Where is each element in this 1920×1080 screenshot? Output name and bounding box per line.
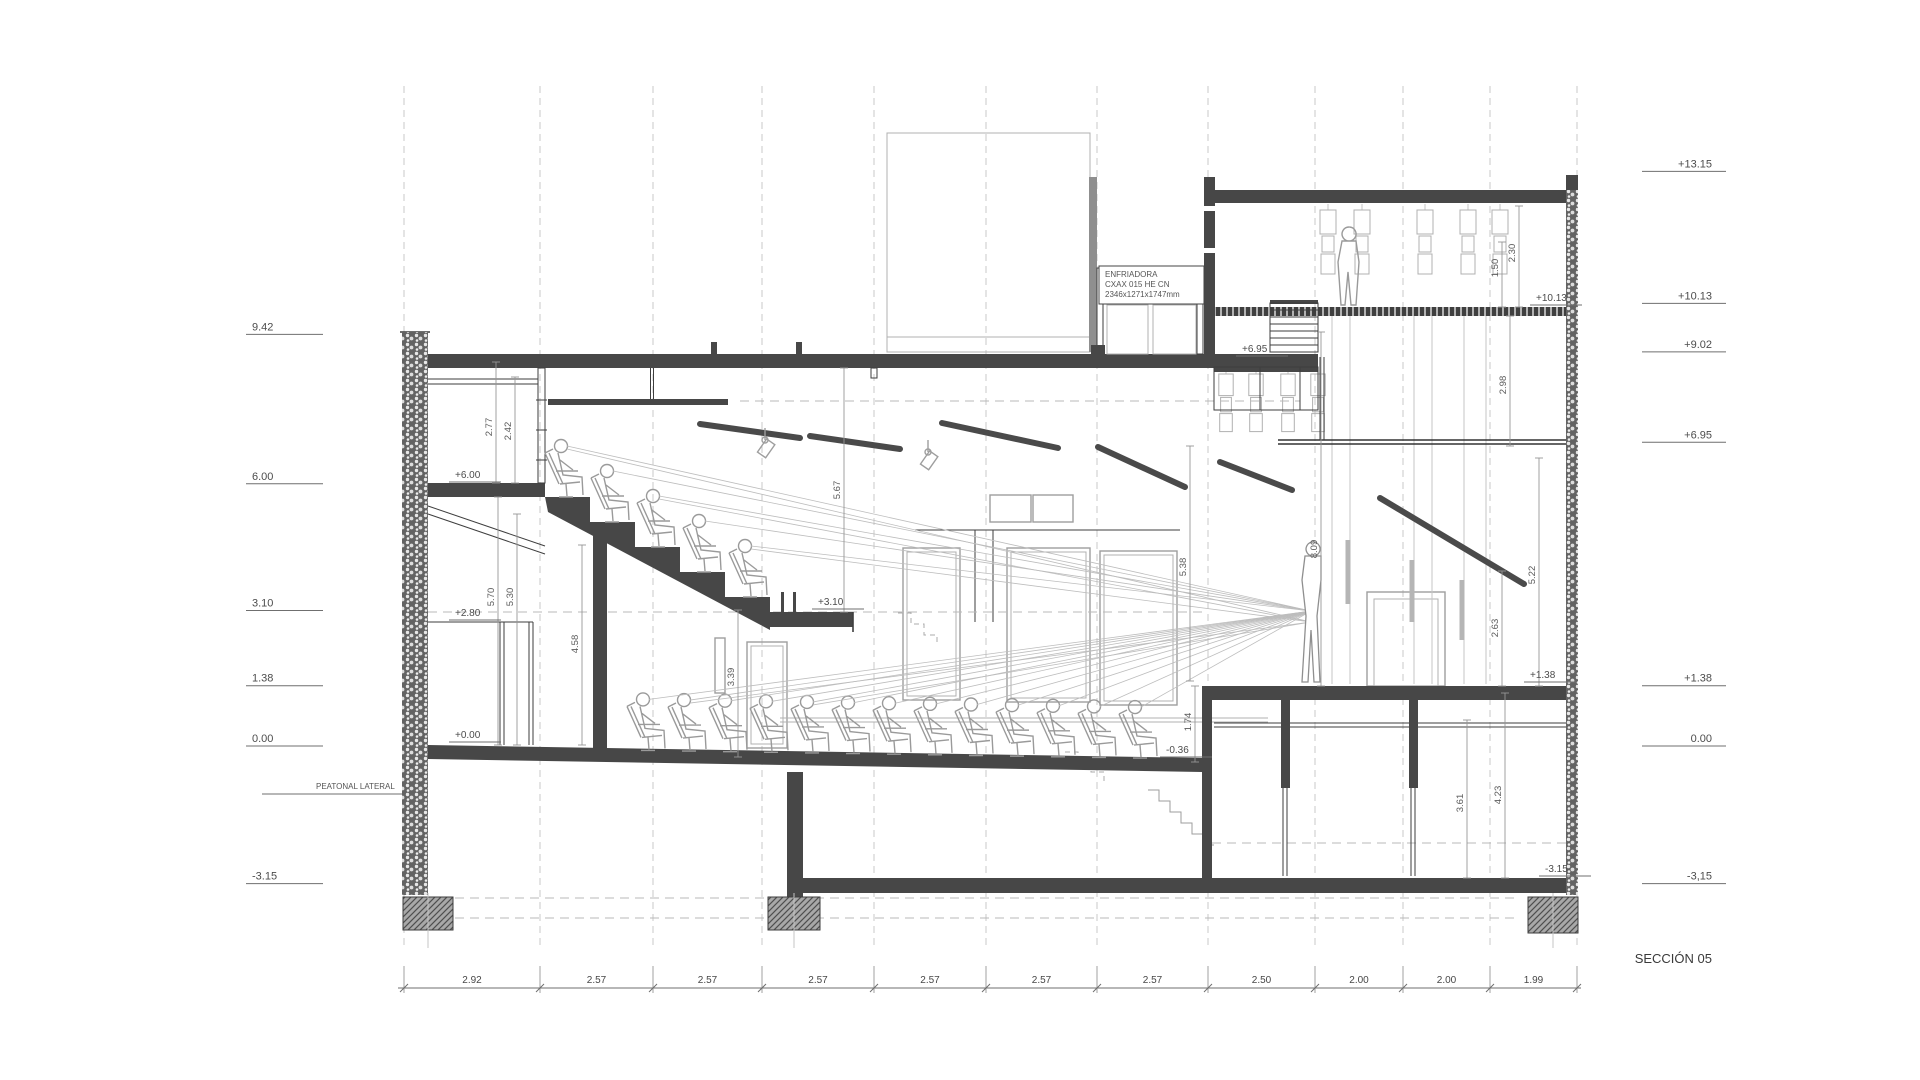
vertical-dim-label: 2.77 <box>484 418 495 437</box>
right-parapet <box>1566 175 1578 191</box>
balcony-baluster <box>793 592 796 612</box>
basement-slab <box>803 878 1568 893</box>
roof-post <box>796 342 802 354</box>
vertical-dim-label: 3.39 <box>726 668 737 687</box>
seated-person-body <box>1091 713 1116 755</box>
seated-person-body <box>742 553 767 595</box>
hoist-body <box>1250 414 1263 432</box>
seated-person-body <box>1050 713 1075 755</box>
hoist-body <box>1419 236 1431 252</box>
sight-line <box>567 449 1311 622</box>
acoustic-baffle <box>810 436 900 449</box>
hoist-body <box>1220 414 1233 432</box>
hoist-body <box>1418 254 1432 274</box>
seated-person-head <box>555 440 568 453</box>
lighting-catwalk <box>548 399 728 405</box>
vertical-dim-label: 2.42 <box>503 422 514 441</box>
door-leaf <box>715 638 725 693</box>
balcony-cross-aisle <box>770 612 853 627</box>
hoist-body <box>1417 210 1433 234</box>
roof-post <box>711 342 717 354</box>
hoist-body <box>1354 210 1370 234</box>
stage-rear-door <box>1367 592 1445 686</box>
acoustic-baffle <box>700 424 800 438</box>
hoist-body <box>1492 210 1508 234</box>
vertical-dim-label: 2.98 <box>1498 376 1509 395</box>
level-label-right: +13.15 <box>1678 158 1712 170</box>
level-label-right: +9.02 <box>1684 339 1712 351</box>
vertical-dim-label: 2.30 <box>1507 244 1518 263</box>
drawing-title: SECCIÓN 05 <box>1635 951 1712 966</box>
dim-chain-label: 2.57 <box>1143 975 1163 986</box>
seated-person-body <box>681 707 706 749</box>
hidden-stair-upper <box>898 613 937 646</box>
column-joint <box>1204 248 1215 253</box>
chiller-door <box>1153 305 1196 354</box>
hoist-body <box>1461 254 1475 274</box>
seated-person-head <box>637 693 650 706</box>
balcony-baluster <box>781 592 784 612</box>
seated-person-head <box>801 695 814 708</box>
seated-person-body <box>722 708 747 750</box>
seat-with-person <box>1037 699 1075 757</box>
enfriadora-model: CXAX 015 HE CN <box>1105 280 1170 289</box>
main-roof-slab <box>428 354 1318 368</box>
seat-with-person <box>683 515 721 573</box>
understage-partition <box>1409 700 1418 788</box>
rear-wall-screen <box>990 495 1031 522</box>
level-label-left: 6.00 <box>252 471 273 483</box>
enfriadora-size: 2346x1271x1747mm <box>1105 290 1180 299</box>
hoist-body <box>1320 210 1336 234</box>
seat-with-person <box>1119 701 1157 759</box>
acoustic-baffle <box>1220 462 1292 490</box>
vertical-dim-label: 5.30 <box>505 588 516 607</box>
hoist-body <box>1312 414 1325 432</box>
vertical-dim-label: 1.74 <box>1183 713 1194 732</box>
vertical-dim-label: 1.50 <box>1490 259 1501 278</box>
interior-level-label: +6.00 <box>455 470 481 481</box>
hoist-body <box>1282 414 1295 432</box>
seated-person-body <box>1132 714 1157 756</box>
interior-level-label: +10.13 <box>1536 293 1567 304</box>
stalls-floor-slab <box>428 745 1202 772</box>
hoist-body <box>1494 236 1506 252</box>
basement-wall <box>787 772 803 897</box>
stair-flight <box>428 506 545 546</box>
dim-chain-label: 2.57 <box>698 975 718 986</box>
sight-line <box>659 496 1311 611</box>
seated-person-head <box>1088 700 1101 713</box>
sight-line <box>751 549 1311 622</box>
seated-person-body <box>845 710 870 752</box>
dim-chain-label: 2.57 <box>920 975 940 986</box>
far-wall-door-frame <box>1007 548 1090 702</box>
seat-with-person <box>791 695 829 753</box>
seat-with-person <box>729 540 767 598</box>
hoist-body <box>1321 254 1335 274</box>
seated-person-head <box>1129 701 1142 714</box>
vertical-dim-label: 4.58 <box>570 635 581 654</box>
seated-person-head <box>760 695 773 708</box>
fly-tower-column <box>1204 177 1215 354</box>
seated-person-body <box>927 711 952 753</box>
vertical-dim-label: 2.63 <box>1490 619 1501 638</box>
level-label-right: +10.13 <box>1678 290 1712 302</box>
proscenium-bridge-frame <box>1214 367 1318 410</box>
left-wall <box>402 332 428 895</box>
hoist-body <box>1322 236 1334 252</box>
penthouse-outline <box>887 133 1090 352</box>
vertical-dim-label: 8.09 <box>1309 540 1320 559</box>
section-drawing-sheet: ENFRIADORACXAX 015 HE CN2346x1271x1747mm… <box>0 0 1920 1080</box>
rear-wall-screen <box>1033 495 1073 522</box>
stair-flight <box>428 514 545 554</box>
interior-level-label: +1.38 <box>1530 670 1556 681</box>
far-wall-door-frame-inner <box>1104 555 1173 701</box>
seated-person-body <box>650 503 675 545</box>
seated-person-head <box>965 698 978 711</box>
seat-with-person <box>914 697 952 755</box>
level-label-right: +6.95 <box>1684 429 1712 441</box>
proscenium-beam <box>1214 367 1318 372</box>
seat-with-person <box>668 694 706 752</box>
seat-with-person <box>955 698 993 756</box>
vertical-dim-label: 5.22 <box>1527 566 1538 585</box>
hoist-body <box>1281 374 1295 396</box>
chiller-door <box>1107 305 1148 354</box>
seat-with-person <box>832 696 870 754</box>
interior-level-label: +2.80 <box>455 608 481 619</box>
sight-line <box>567 446 1311 611</box>
dim-chain-label: 2.57 <box>808 975 828 986</box>
spotlight-body <box>757 439 774 458</box>
seated-person-head <box>601 465 614 478</box>
acoustic-baffle <box>942 423 1058 448</box>
dim-chain-label: 2.57 <box>587 975 607 986</box>
interior-level-label: +3.10 <box>818 597 844 608</box>
wall-base-block <box>1091 345 1105 357</box>
dim-chain-label: 2.50 <box>1252 975 1272 986</box>
clerestory-mullion <box>538 368 545 483</box>
dim-chain-label: 2.00 <box>1349 975 1369 986</box>
dim-chain-label: 2.92 <box>462 975 482 986</box>
dim-chain-label: 1.99 <box>1524 975 1544 986</box>
seated-person-body <box>558 453 583 495</box>
far-wall-door-frame <box>903 548 960 700</box>
vertical-dim-label: 3.61 <box>1455 794 1466 813</box>
seated-person-head <box>883 697 896 710</box>
section-05-drawing: ENFRIADORACXAX 015 HE CN2346x1271x1747mm… <box>0 0 1920 1080</box>
dim-chain-label: 2.57 <box>1032 975 1052 986</box>
seated-person-head <box>719 694 732 707</box>
stage-floor-slab <box>1202 686 1568 700</box>
level-label-right: +1.38 <box>1684 673 1712 685</box>
tribune-support-wall <box>593 532 607 758</box>
seat-with-person <box>709 694 747 752</box>
upper-volume-end-wall <box>1089 177 1097 352</box>
level-label-left: 1.38 <box>252 673 273 685</box>
hoist-body <box>1462 236 1474 252</box>
acoustic-baffle <box>1098 447 1185 487</box>
seated-person-body <box>804 709 829 751</box>
dim-chain-label: 2.00 <box>1437 975 1457 986</box>
hoist-body <box>1355 254 1369 274</box>
right-wall <box>1566 190 1578 895</box>
vertical-dim-label: 5.38 <box>1178 558 1189 577</box>
level-label-left: 9.42 <box>252 321 273 333</box>
level-600-slab <box>428 483 545 497</box>
vertical-dim-label: 4.23 <box>1493 786 1504 805</box>
seated-person-head <box>1047 699 1060 712</box>
hoist-body <box>1249 374 1263 396</box>
fly-tower-roof-slab <box>1204 190 1577 203</box>
seat-with-person <box>627 693 665 751</box>
seated-person-body <box>886 710 911 752</box>
seated-person-body <box>696 528 721 570</box>
spotlight-body <box>920 451 937 470</box>
stage-front-wall <box>1202 686 1212 878</box>
level-label-left: 3.10 <box>252 598 273 610</box>
vertical-dim-label: 5.67 <box>832 481 843 500</box>
interior-level-label: -3.15 <box>1545 864 1568 875</box>
peatonal-label: PEATONAL LATERAL <box>316 782 395 791</box>
interior-level-label: -0.36 <box>1166 745 1189 756</box>
column-joint <box>1204 206 1215 211</box>
seated-person-head <box>1006 699 1019 712</box>
technical-grid-floor <box>1215 307 1566 316</box>
hoist-body <box>1460 210 1476 234</box>
understage-partition <box>1281 700 1290 788</box>
enfriadora-label: ENFRIADORA <box>1105 270 1158 279</box>
interior-level-label: +0.00 <box>455 730 481 741</box>
seated-person-body <box>604 478 629 520</box>
stage-rear-door-inner <box>1374 599 1438 686</box>
far-wall-door-frame <box>1100 551 1177 705</box>
hoist-body <box>1219 374 1233 396</box>
level-label-left: -3.15 <box>252 871 277 883</box>
seat-with-person <box>996 699 1034 757</box>
level-label-left: 0.00 <box>252 733 273 745</box>
level-label-right: -3,15 <box>1687 871 1712 883</box>
interior-level-label: +6.95 <box>1242 344 1268 355</box>
seated-person-head <box>693 515 706 528</box>
seat-with-person <box>873 697 911 755</box>
vertical-dim-label: 5.70 <box>486 588 497 607</box>
level-label-right: 0.00 <box>1691 733 1712 745</box>
seated-person-head <box>739 540 752 553</box>
